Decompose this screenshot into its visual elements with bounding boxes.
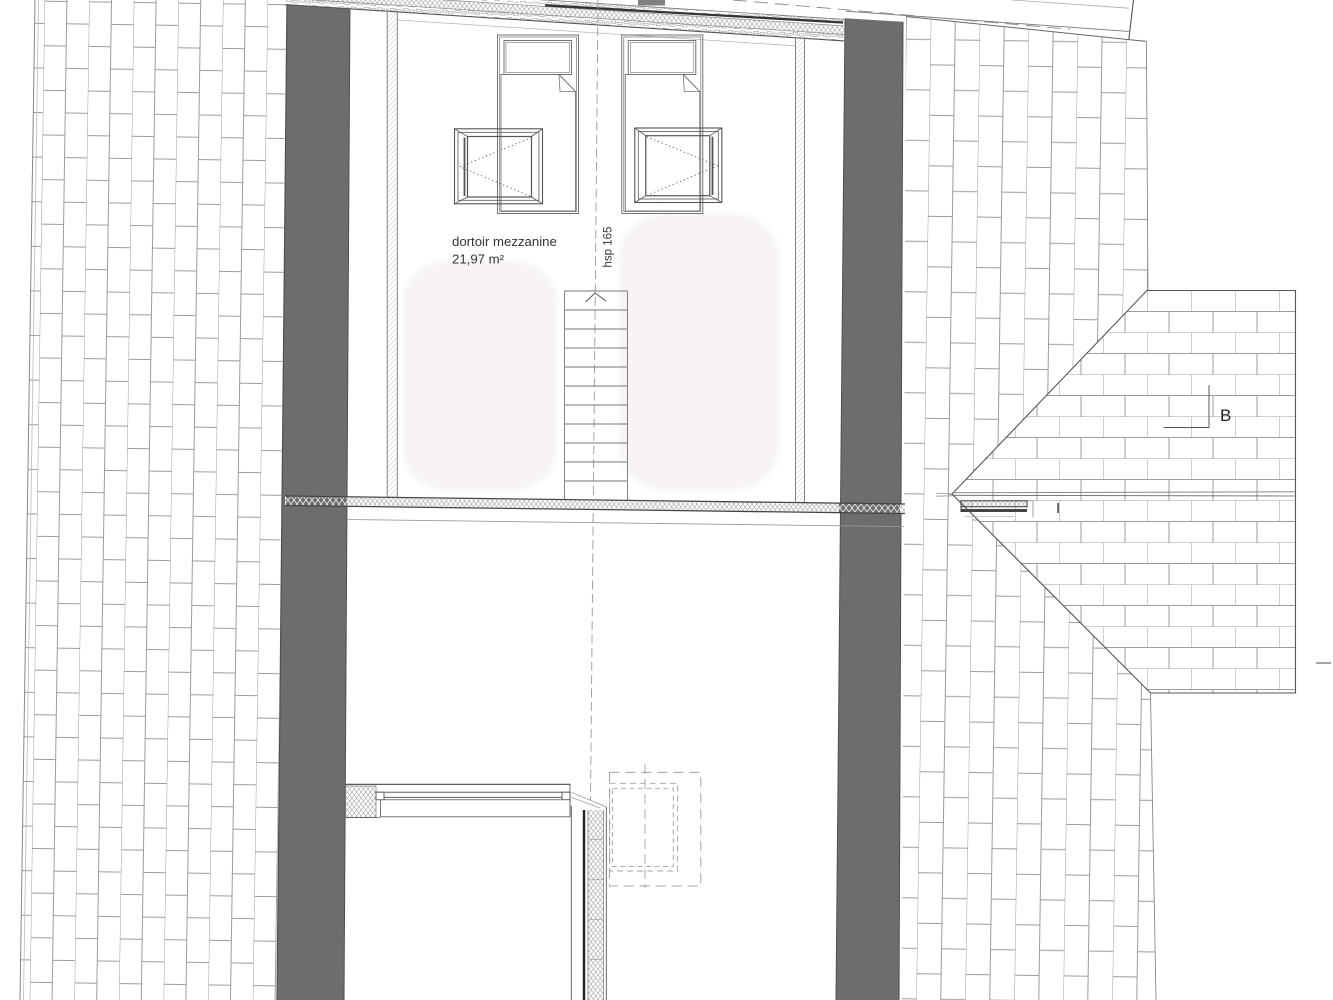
svg-text:B: B [1220,406,1231,425]
svg-text:21,97 m²: 21,97 m² [452,252,505,267]
svg-text:dortoir mezzanine: dortoir mezzanine [452,234,557,249]
svg-text:I: I [1056,500,1060,517]
svg-text:hsp 165: hsp 165 [603,227,615,268]
